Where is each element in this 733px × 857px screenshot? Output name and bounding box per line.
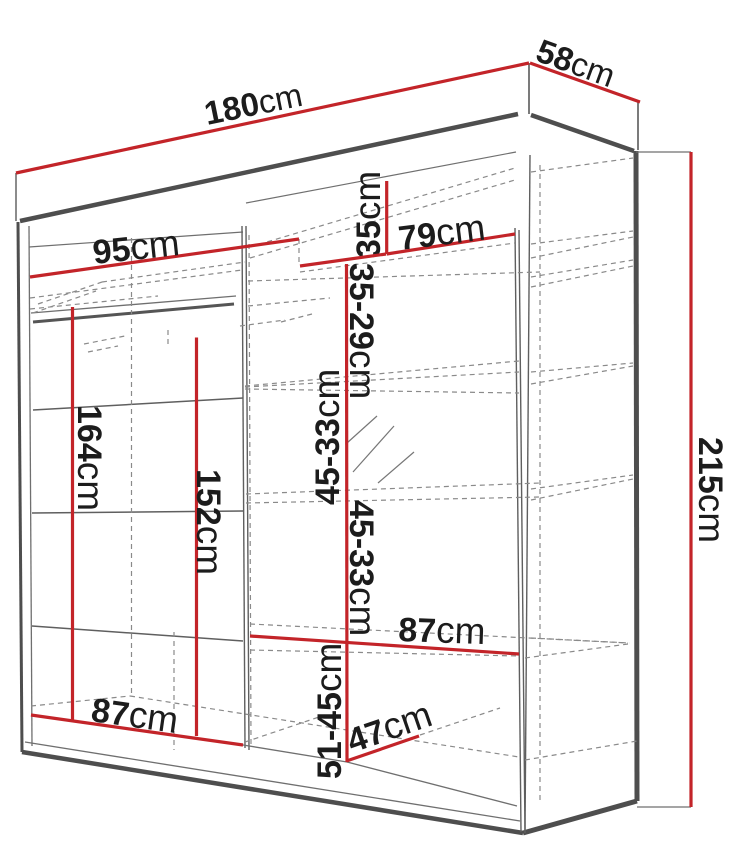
svg-text:35-29cm: 35-29cm bbox=[342, 263, 383, 399]
svg-text:35cm: 35cm bbox=[347, 171, 388, 258]
svg-text:87cm: 87cm bbox=[398, 608, 487, 652]
svg-text:152cm: 152cm bbox=[189, 469, 230, 575]
svg-text:164cm: 164cm bbox=[70, 405, 111, 511]
svg-text:215cm: 215cm bbox=[691, 437, 732, 543]
svg-text:45-33cm: 45-33cm bbox=[306, 369, 347, 505]
svg-text:45-33cm: 45-33cm bbox=[342, 500, 383, 636]
svg-text:51-45cm: 51-45cm bbox=[308, 643, 349, 779]
